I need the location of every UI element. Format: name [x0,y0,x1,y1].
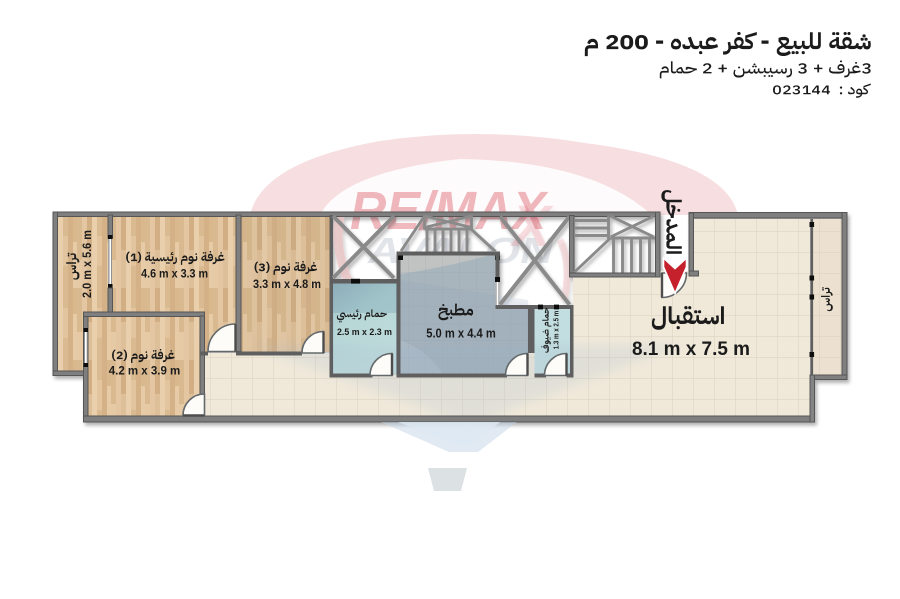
svg-text:X: X [509,194,554,259]
svg-text:5.0 m x 4.4 m: 5.0 m x 4.4 m [426,327,496,341]
svg-text:1.3 m x 2.5 m: 1.3 m x 2.5 m [551,310,560,349]
svg-text:4.6 m x 3.3 m: 4.6 m x 3.3 m [141,266,208,280]
svg-text:3.3 m x 4.8 m: 3.3 m x 4.8 m [253,277,321,291]
svg-text:8.1 m x 7.5 m: 8.1 m x 7.5 m [632,339,750,360]
svg-text:2.5 m x 2.3 m: 2.5 m x 2.3 m [337,327,392,338]
svg-text:4.2 m x 3.9 m: 4.2 m x 3.9 m [109,363,181,377]
svg-text:2.0 m x 5.6 m: 2.0 m x 5.6 m [82,230,94,298]
